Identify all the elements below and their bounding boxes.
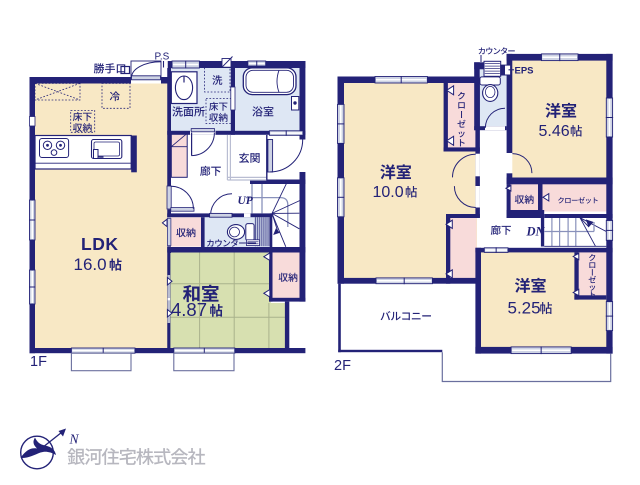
svg-text:4.87: 4.87 <box>171 299 207 320</box>
svg-text:DN: DN <box>526 225 546 239</box>
svg-text:2F: 2F <box>334 358 351 374</box>
svg-text:N: N <box>69 432 80 447</box>
svg-text:16.0: 16.0 <box>74 255 107 274</box>
svg-text:P.S: P.S <box>155 52 170 63</box>
svg-text:10.0: 10.0 <box>373 184 404 201</box>
svg-text:EPS: EPS <box>515 66 534 77</box>
svg-text:UP: UP <box>238 195 254 207</box>
svg-text:5.46: 5.46 <box>539 123 570 140</box>
svg-text:1F: 1F <box>30 354 47 370</box>
svg-text:5.25: 5.25 <box>508 299 541 318</box>
svg-text:LDK: LDK <box>81 234 118 254</box>
